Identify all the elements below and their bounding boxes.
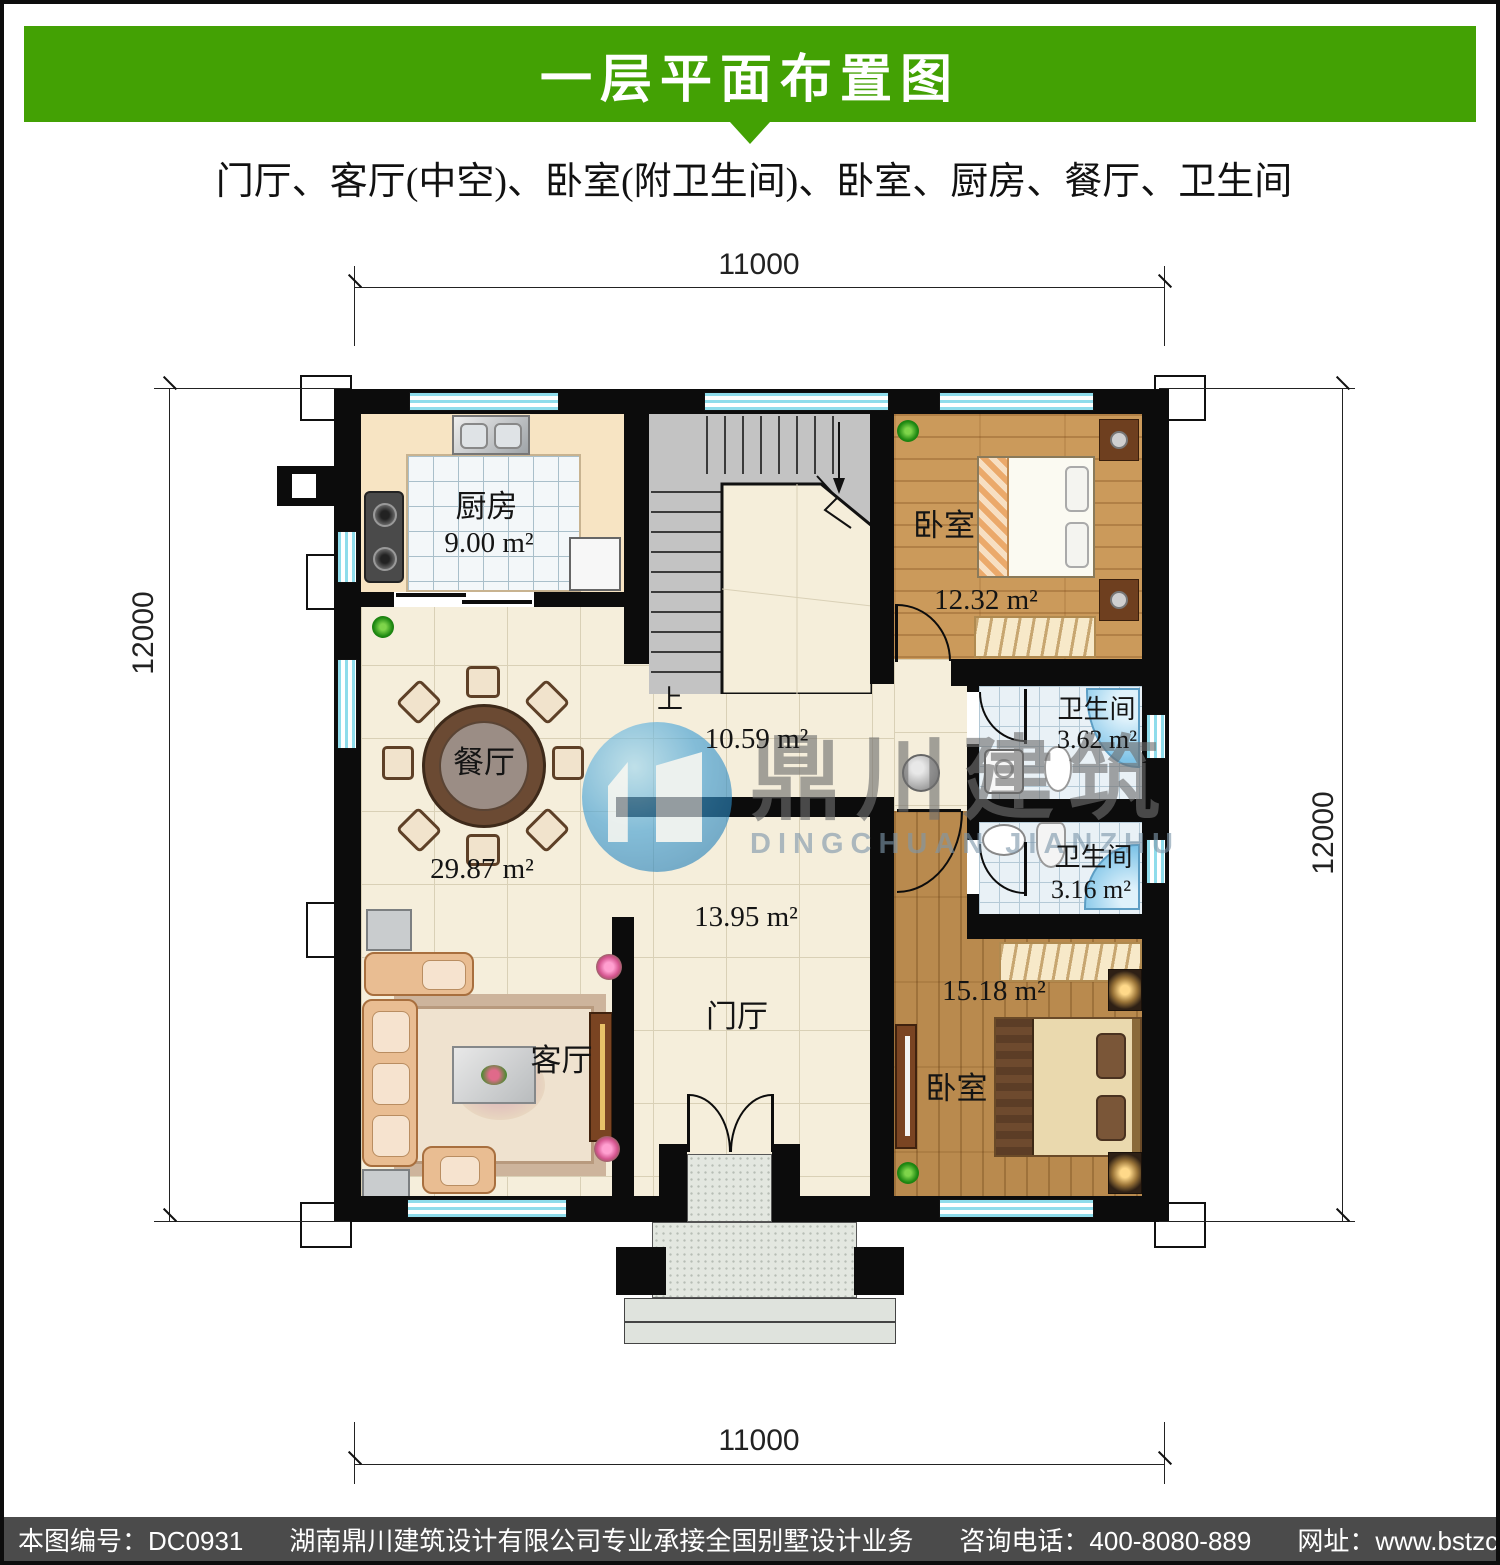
wall xyxy=(772,1144,800,1222)
ext-line xyxy=(154,388,350,389)
stove xyxy=(364,491,404,583)
bath-top-label: 卫生间 xyxy=(1039,696,1154,725)
dim-right: 12000 xyxy=(1307,778,1341,888)
ext-line xyxy=(1159,1221,1355,1222)
dim-bottom: 11000 xyxy=(704,1424,814,1458)
porch-column xyxy=(616,1247,666,1295)
ext-line xyxy=(354,1422,355,1484)
dim-tick xyxy=(163,1208,177,1222)
flower-pot xyxy=(596,954,622,980)
wall xyxy=(967,914,1142,939)
sofa xyxy=(362,999,418,1167)
dining-chair xyxy=(552,746,584,780)
stair-hall-area: 10.59 m² xyxy=(689,724,824,756)
living-label: 客厅 xyxy=(509,1044,614,1078)
dim-tick xyxy=(348,274,362,288)
banner-pointer-icon xyxy=(730,122,770,144)
wall xyxy=(951,659,1142,686)
porch-column xyxy=(854,1247,904,1295)
dining-label: 餐厅 xyxy=(434,746,534,780)
dining-chair xyxy=(382,746,414,780)
bedroom-bottom-area: 15.18 m² xyxy=(919,976,1069,1008)
wall xyxy=(659,1144,687,1222)
wall xyxy=(870,414,894,684)
flower-pot xyxy=(594,1136,620,1162)
side-table xyxy=(366,909,412,951)
plant xyxy=(897,1162,919,1184)
sofa-chaise xyxy=(364,952,474,996)
nightstand xyxy=(1099,579,1139,621)
dim-top: 11000 xyxy=(704,248,814,282)
wardrobe xyxy=(974,616,1096,658)
dim-line-left xyxy=(169,389,170,1222)
living-dining-area: 29.87 m² xyxy=(412,854,552,886)
sheet-number: 本图编号：DC0931 xyxy=(18,1521,243,1558)
kitchen-area: 9.00 m² xyxy=(424,528,554,560)
dim-tick xyxy=(1336,1208,1350,1222)
porch-step xyxy=(624,1298,896,1322)
nightstand-lamp xyxy=(1108,969,1142,1011)
entry-threshold xyxy=(687,1154,772,1222)
dim-tick xyxy=(1158,274,1172,288)
dim-line-right xyxy=(1342,389,1343,1222)
page-title: 一层平面布置图 xyxy=(24,26,1476,122)
hall-area: 13.95 m² xyxy=(676,902,816,934)
plant xyxy=(372,616,394,638)
nightstand xyxy=(1099,419,1139,461)
kitchen-label: 厨房 xyxy=(429,490,544,524)
room-list-subtitle: 门厅、客厅(中空)、卧室(附卫生间)、卧室、厨房、餐厅、卫生间 xyxy=(4,150,1500,205)
hall-label: 门厅 xyxy=(682,1000,792,1034)
bedroom-bottom-label: 卧室 xyxy=(899,1072,1014,1106)
kitchen-sliding-door xyxy=(462,600,532,604)
fridge xyxy=(569,537,621,591)
window xyxy=(407,1199,567,1218)
window xyxy=(939,1199,1094,1218)
dim-line-top xyxy=(354,287,1164,288)
ext-line xyxy=(154,1221,350,1222)
ext-line xyxy=(1159,388,1355,389)
window xyxy=(939,392,1094,411)
plant xyxy=(897,420,919,442)
dim-tick xyxy=(348,1451,362,1465)
dining-chair xyxy=(466,666,500,698)
armchair xyxy=(422,1146,496,1194)
dim-left: 12000 xyxy=(127,578,161,688)
porch-step xyxy=(624,1322,896,1344)
window xyxy=(337,531,357,583)
website: 网址：www.bstzcs.com xyxy=(1297,1521,1500,1558)
wall xyxy=(334,389,361,1222)
nightstand-lamp xyxy=(1108,1152,1142,1194)
bedroom-top-label: 卧室 xyxy=(889,509,999,543)
stairs-up-label: 上 xyxy=(654,686,686,715)
dim-tick xyxy=(1158,1451,1172,1465)
footer-bar: 本图编号：DC0931 湖南鼎川建筑设计有限公司专业承接全国别墅设计业务 咨询电… xyxy=(4,1517,1496,1561)
title-banner: 一层平面布置图 xyxy=(24,26,1476,122)
porch-slab xyxy=(652,1222,857,1298)
kitchen-sink xyxy=(452,415,530,455)
wall xyxy=(624,414,649,664)
window xyxy=(704,392,889,411)
staircase xyxy=(649,414,872,694)
ext-line xyxy=(1164,1422,1165,1484)
bath-bottom-label: 卫生间 xyxy=(1036,844,1151,873)
window xyxy=(409,392,559,411)
kitchen-sliding-door xyxy=(396,593,466,597)
phone-number: 咨询电话：400-8080-889 xyxy=(959,1521,1251,1558)
bath-top-area: 3.62 m² xyxy=(1042,726,1152,755)
dim-line-bottom xyxy=(354,1464,1164,1465)
floor-plan-sheet: 一层平面布置图 门厅、客厅(中空)、卧室(附卫生间)、卧室、厨房、餐厅、卫生间 … xyxy=(0,0,1500,1565)
bath-bottom-area: 3.16 m² xyxy=(1036,876,1146,905)
company-name: 湖南鼎川建筑设计有限公司专业承接全国别墅设计业务 xyxy=(289,1521,913,1558)
bed xyxy=(994,1017,1142,1157)
window xyxy=(337,659,357,749)
bedroom-top-area: 12.32 m² xyxy=(916,585,1056,617)
chimney-flue xyxy=(292,474,316,498)
